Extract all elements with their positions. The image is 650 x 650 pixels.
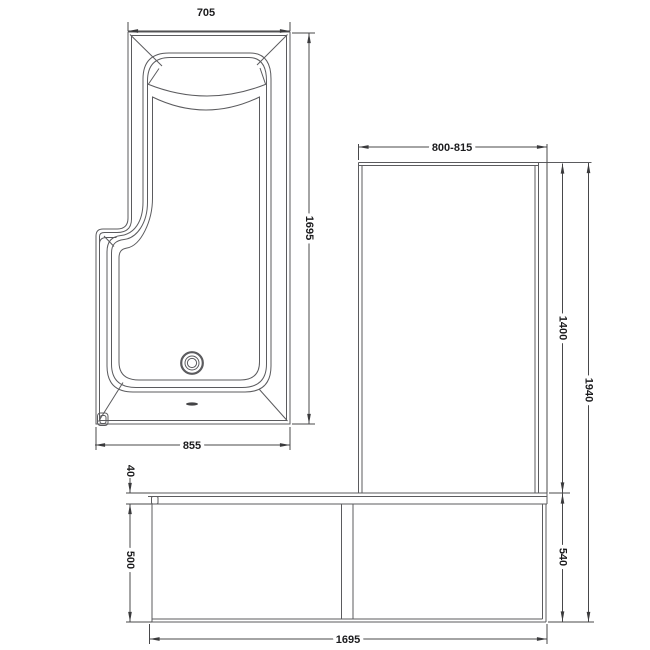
backrest-arc <box>148 84 267 96</box>
corner-diagonal-top-right-2 <box>260 68 266 84</box>
dim-label-1400: 1400 <box>557 316 569 340</box>
overflow-slot <box>186 402 198 405</box>
dim-label-540: 540 <box>557 548 569 566</box>
dim-plan-length: 1695 <box>292 33 315 424</box>
corner-diagonal-top-left <box>130 35 162 67</box>
dim-total-height: 1940 <box>548 163 595 622</box>
corner-diagonal-top-right <box>257 35 288 66</box>
technical-drawing-page: 705 1695 855 <box>0 0 650 650</box>
dim-end-panel-height: 540 <box>549 493 570 622</box>
bath-rim-band <box>148 493 547 504</box>
bath-technical-drawing: 705 1695 855 <box>0 0 650 650</box>
plan-view <box>96 32 290 426</box>
drain-icon <box>181 352 203 374</box>
dim-label-1940: 1940 <box>583 378 595 402</box>
dim-label-1695-plan: 1695 <box>303 216 315 240</box>
dim-panel-height: 500 <box>124 504 152 622</box>
dim-label-855: 855 <box>183 440 201 452</box>
bath-panel <box>152 504 546 622</box>
basin-rim-inner <box>112 58 267 388</box>
dim-plan-width-bottom: 855 <box>95 427 290 452</box>
dim-label-500: 500 <box>124 551 136 569</box>
dim-label-40: 40 <box>124 465 136 477</box>
plan-outer-wall <box>96 32 290 424</box>
dim-screen-height: 1400 <box>557 164 569 493</box>
dim-screen-width: 800-815 <box>359 142 548 160</box>
corner-diagonal-bottom-right <box>259 389 288 421</box>
dim-side-length: 1695 <box>150 624 548 646</box>
side-view <box>148 144 592 622</box>
corner-diagonal-top-left-2 <box>149 69 160 85</box>
side-dimensions: 800-815 1400 1940 540 40 <box>124 142 595 646</box>
dim-label-1695-side: 1695 <box>336 634 360 646</box>
dim-label-800-815: 800-815 <box>432 142 472 154</box>
basin-floor <box>119 97 260 380</box>
dim-label-705: 705 <box>197 7 215 19</box>
dim-plan-width-top: 705 <box>128 7 290 31</box>
dim-rim-height: 40 <box>124 465 151 504</box>
